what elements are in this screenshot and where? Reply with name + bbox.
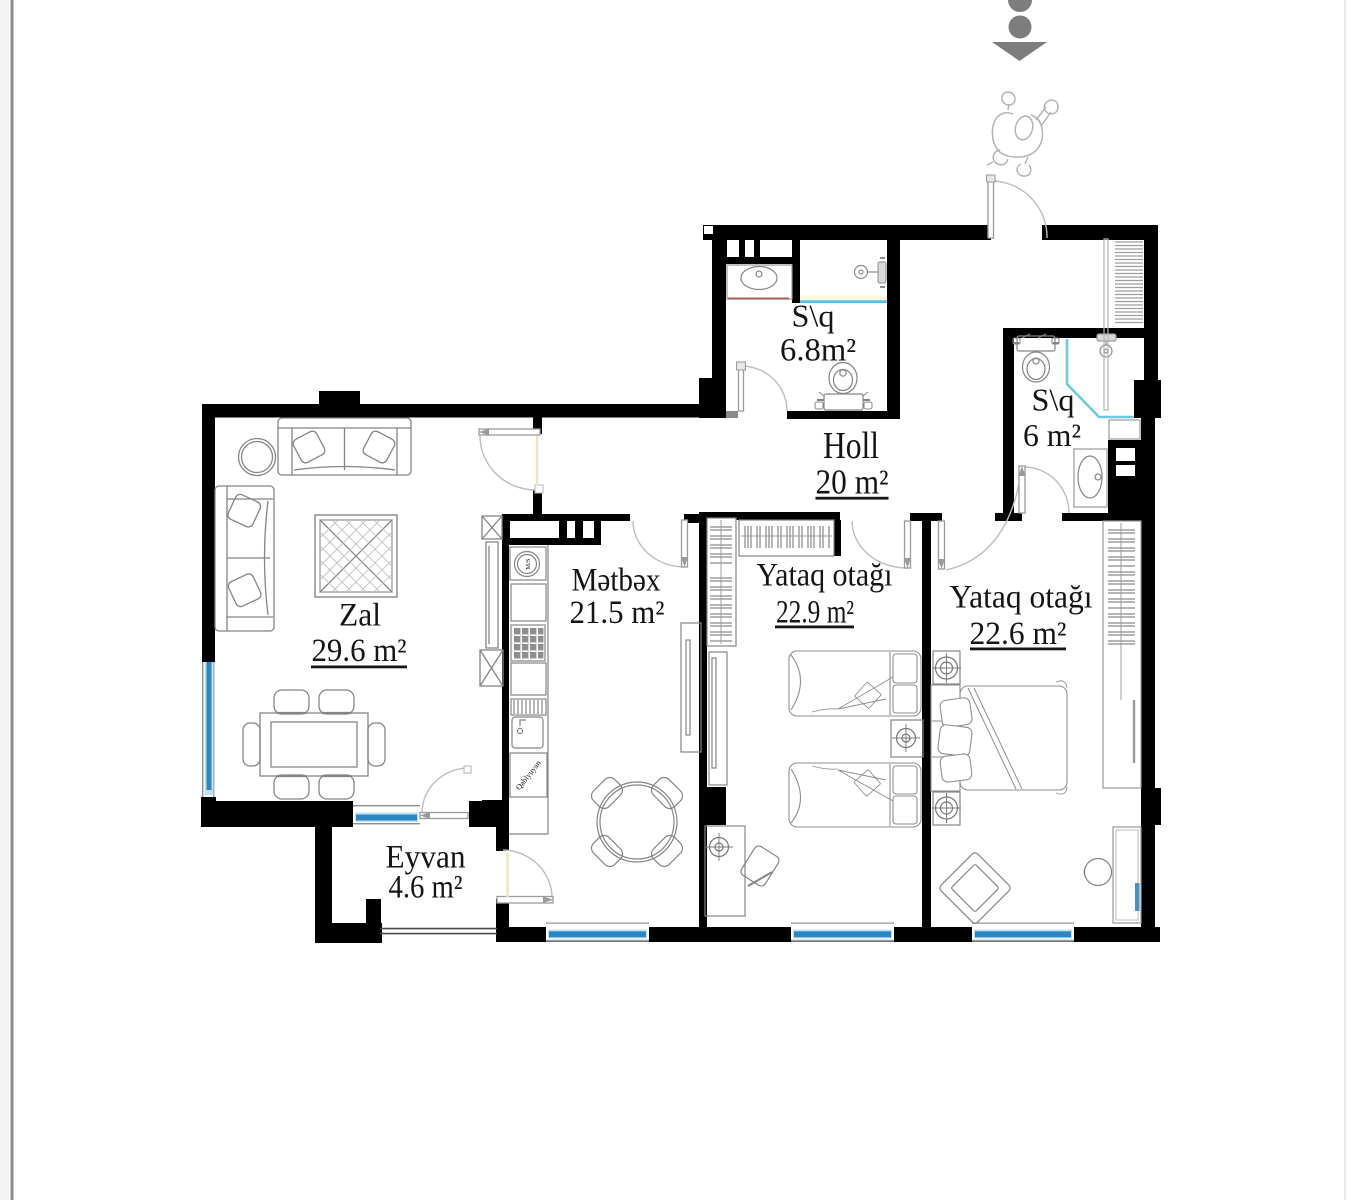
svg-text:M/S: M/S: [525, 558, 532, 570]
svg-text:20 m²: 20 m²: [816, 463, 889, 502]
svg-text:Zal: Zal: [339, 598, 381, 634]
svg-text:Mətbəx: Mətbəx: [572, 563, 661, 599]
svg-text:21.5 m²: 21.5 m²: [570, 595, 665, 631]
svg-text:Yataq otağı: Yataq otağı: [950, 580, 1093, 616]
svg-text:6.8m²: 6.8m²: [780, 333, 856, 369]
svg-text:Yataq otağı: Yataq otağı: [757, 558, 893, 594]
svg-text:29.6 m²: 29.6 m²: [312, 633, 407, 669]
svg-text:S\q: S\q: [792, 298, 835, 334]
svg-text:22.6 m²: 22.6 m²: [970, 616, 1067, 652]
svg-text:Holl: Holl: [823, 425, 879, 467]
svg-text:22.9 m²: 22.9 m²: [776, 595, 854, 631]
svg-text:S\q: S\q: [1032, 382, 1075, 418]
svg-text:6 m²: 6 m²: [1023, 417, 1081, 453]
svg-text:4.6 m²: 4.6 m²: [389, 870, 463, 906]
